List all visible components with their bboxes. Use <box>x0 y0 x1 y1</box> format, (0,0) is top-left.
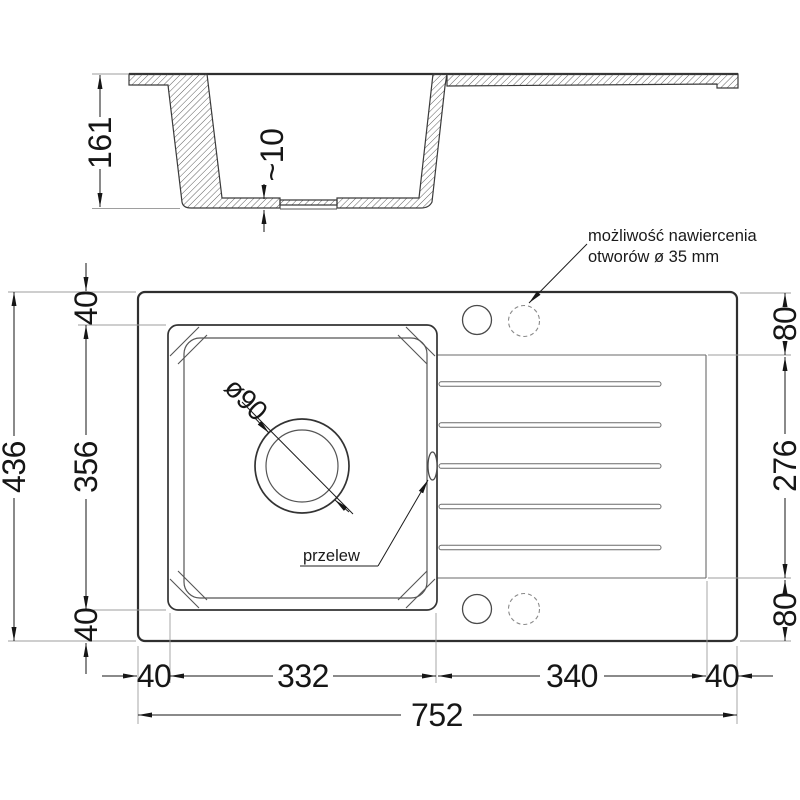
overflow-slot <box>428 452 437 480</box>
dim-bottom-right-margin-label: 40 <box>705 658 740 694</box>
dim-bottom-thickness-label: ~10 <box>254 129 290 182</box>
dim-bottom-drainboard-label: 340 <box>546 658 598 694</box>
drainboard-groove <box>439 545 661 550</box>
dim-left-total-label: 436 <box>0 441 32 493</box>
dim-left-bottom-label: 40 <box>68 608 104 643</box>
dim-right-drainboard-label: 276 <box>767 440 800 492</box>
section-right-wall <box>337 74 447 208</box>
section-drain-recess <box>280 200 337 205</box>
dim-bottom-total: 752 <box>138 697 737 733</box>
faucet-hole <box>463 306 492 335</box>
bowl <box>168 325 437 610</box>
drain-outer-circle <box>255 419 349 513</box>
dim-right-top-label: 80 <box>767 307 800 342</box>
dim-bottom-bowl-label: 332 <box>277 658 329 694</box>
overflow-label: przelew <box>303 547 360 565</box>
dim-bottom-total-label: 752 <box>411 697 463 733</box>
dim-left-top-label: 40 <box>68 291 104 326</box>
drainboard-groove <box>439 504 661 509</box>
dim-bottom-thickness: ~10 <box>254 129 290 232</box>
dim-right-bottom-label: 80 <box>767 593 800 628</box>
cross-section-view: 161 ~10 <box>82 74 738 232</box>
dim-section-height: 161 <box>82 74 180 209</box>
plan-view <box>138 292 737 641</box>
sink-technical-drawing: 161 ~10 <box>0 0 800 800</box>
drainboard-groove <box>439 423 661 428</box>
drill-note-line2: otworów ø 35 mm <box>588 248 719 266</box>
drainboard-groove <box>439 382 661 387</box>
sink-technical-drawing-page: 161 ~10 <box>0 0 800 800</box>
section-drainboard-wedge <box>447 74 738 88</box>
drainboard-groove <box>439 464 661 469</box>
drill-note-line1: możliwość nawiercenia <box>588 227 758 245</box>
dim-section-height-label: 161 <box>82 117 118 169</box>
dim-left-bowl-label: 356 <box>68 441 104 493</box>
faucet-hole <box>463 595 492 624</box>
dim-bottom-left-margin-label: 40 <box>137 658 172 694</box>
